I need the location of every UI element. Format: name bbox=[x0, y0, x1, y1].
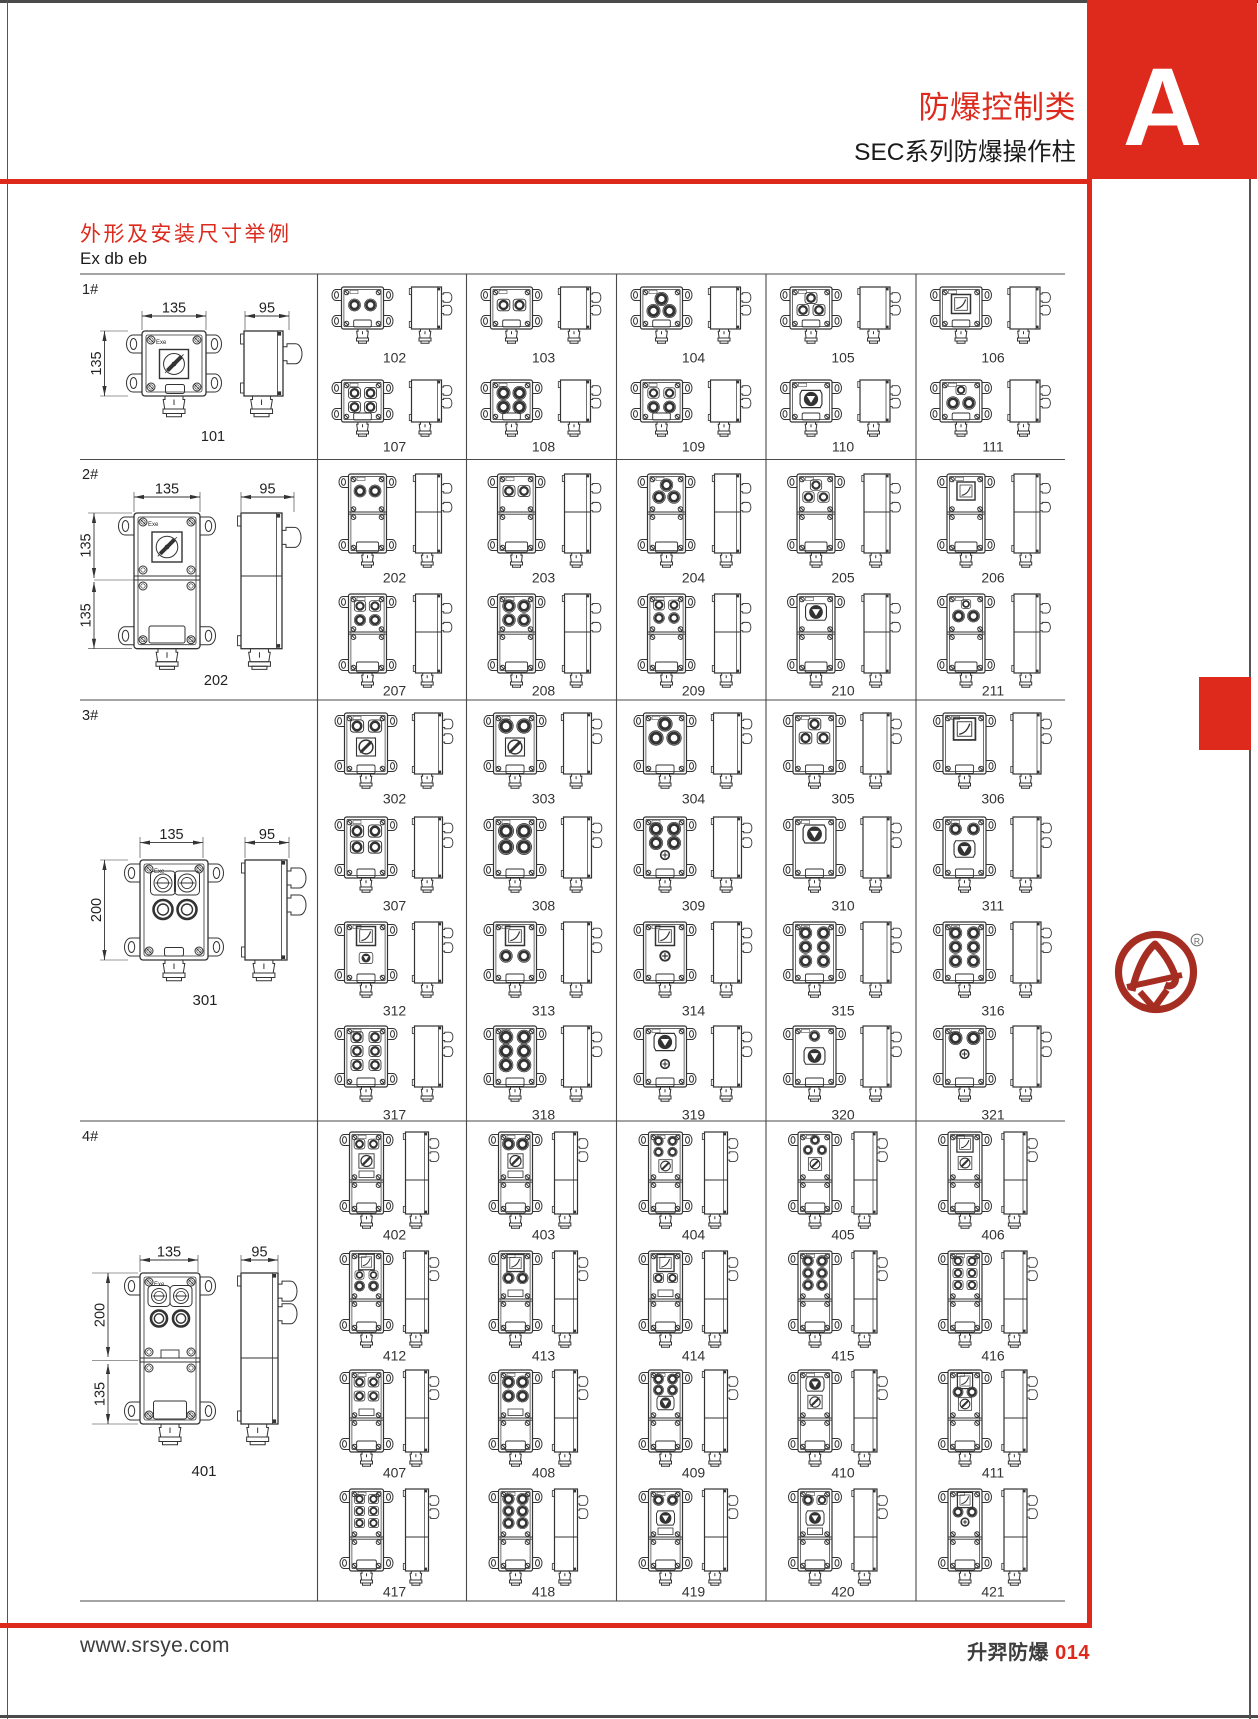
svg-text:316: 316 bbox=[981, 1003, 1005, 1019]
svg-text:203: 203 bbox=[532, 570, 556, 586]
svg-text:Exe: Exe bbox=[156, 340, 167, 346]
svg-text:210: 210 bbox=[831, 683, 855, 699]
svg-text:408: 408 bbox=[532, 1465, 556, 1481]
svg-text:320: 320 bbox=[831, 1107, 855, 1123]
svg-text:306: 306 bbox=[981, 791, 1005, 807]
svg-text:202: 202 bbox=[383, 570, 407, 586]
svg-text:1#: 1# bbox=[82, 282, 98, 298]
svg-text:421: 421 bbox=[981, 1584, 1005, 1600]
svg-text:135: 135 bbox=[89, 351, 105, 375]
svg-text:200: 200 bbox=[93, 1303, 109, 1327]
svg-text:200: 200 bbox=[89, 898, 105, 922]
svg-text:413: 413 bbox=[532, 1348, 556, 1364]
svg-text:135: 135 bbox=[155, 482, 179, 498]
svg-text:417: 417 bbox=[383, 1584, 407, 1600]
svg-text:416: 416 bbox=[981, 1348, 1005, 1364]
svg-text:106: 106 bbox=[981, 350, 1005, 366]
svg-text:135: 135 bbox=[157, 1245, 181, 1261]
svg-text:104: 104 bbox=[682, 350, 706, 366]
svg-text:105: 105 bbox=[831, 350, 855, 366]
svg-text:206: 206 bbox=[981, 570, 1005, 586]
svg-text:208: 208 bbox=[532, 683, 556, 699]
svg-text:R: R bbox=[1194, 936, 1200, 946]
svg-text:314: 314 bbox=[682, 1003, 706, 1019]
svg-text:205: 205 bbox=[831, 570, 855, 586]
svg-text:407: 407 bbox=[383, 1465, 407, 1481]
svg-text:310: 310 bbox=[831, 898, 855, 914]
svg-text:135: 135 bbox=[162, 301, 186, 317]
svg-text:318: 318 bbox=[532, 1107, 556, 1123]
svg-text:308: 308 bbox=[532, 898, 556, 914]
svg-text:3#: 3# bbox=[82, 708, 98, 724]
svg-text:303: 303 bbox=[532, 791, 556, 807]
svg-text:313: 313 bbox=[532, 1003, 556, 1019]
svg-text:204: 204 bbox=[682, 570, 706, 586]
svg-text:420: 420 bbox=[831, 1584, 855, 1600]
svg-text:Exe: Exe bbox=[148, 522, 159, 528]
svg-text:401: 401 bbox=[191, 1463, 216, 1480]
svg-text:101: 101 bbox=[201, 429, 225, 445]
svg-text:209: 209 bbox=[682, 683, 706, 699]
svg-text:414: 414 bbox=[682, 1348, 706, 1364]
svg-text:135: 135 bbox=[159, 827, 183, 843]
svg-text:102: 102 bbox=[383, 350, 407, 366]
svg-text:305: 305 bbox=[831, 791, 855, 807]
svg-text:406: 406 bbox=[981, 1227, 1005, 1243]
svg-text:110: 110 bbox=[832, 439, 855, 455]
svg-text:411: 411 bbox=[982, 1465, 1005, 1481]
svg-text:309: 309 bbox=[682, 898, 706, 914]
svg-text:403: 403 bbox=[532, 1227, 556, 1243]
svg-text:95: 95 bbox=[259, 827, 275, 843]
svg-text:302: 302 bbox=[383, 791, 407, 807]
svg-text:108: 108 bbox=[532, 439, 556, 455]
svg-text:211: 211 bbox=[982, 683, 1005, 699]
svg-text:95: 95 bbox=[251, 1245, 267, 1261]
svg-text:412: 412 bbox=[383, 1348, 407, 1364]
svg-text:321: 321 bbox=[981, 1107, 1005, 1123]
svg-text:4#: 4# bbox=[82, 1129, 98, 1145]
svg-text:410: 410 bbox=[831, 1465, 855, 1481]
svg-text:312: 312 bbox=[383, 1003, 407, 1019]
svg-text:202: 202 bbox=[204, 673, 228, 689]
svg-text:404: 404 bbox=[682, 1227, 706, 1243]
svg-text:207: 207 bbox=[383, 683, 407, 699]
svg-text:405: 405 bbox=[831, 1227, 855, 1243]
svg-text:304: 304 bbox=[682, 791, 706, 807]
svg-text:107: 107 bbox=[383, 439, 407, 455]
svg-text:315: 315 bbox=[831, 1003, 855, 1019]
svg-text:418: 418 bbox=[532, 1584, 556, 1600]
svg-text:109: 109 bbox=[682, 439, 706, 455]
svg-text:103: 103 bbox=[532, 350, 556, 366]
svg-text:317: 317 bbox=[383, 1107, 407, 1123]
svg-text:409: 409 bbox=[682, 1465, 706, 1481]
svg-text:2#: 2# bbox=[82, 467, 98, 483]
svg-text:311: 311 bbox=[982, 898, 1005, 914]
svg-text:135: 135 bbox=[93, 1382, 109, 1406]
svg-text:419: 419 bbox=[682, 1584, 706, 1600]
svg-text:135: 135 bbox=[79, 603, 95, 627]
svg-text:307: 307 bbox=[383, 898, 407, 914]
svg-text:135: 135 bbox=[79, 533, 95, 557]
svg-text:319: 319 bbox=[682, 1107, 706, 1123]
svg-text:415: 415 bbox=[831, 1348, 855, 1364]
svg-text:95: 95 bbox=[259, 482, 275, 498]
svg-text:95: 95 bbox=[259, 301, 275, 317]
svg-text:301: 301 bbox=[192, 992, 217, 1009]
svg-text:402: 402 bbox=[383, 1227, 407, 1243]
svg-text:111: 111 bbox=[982, 439, 1003, 455]
